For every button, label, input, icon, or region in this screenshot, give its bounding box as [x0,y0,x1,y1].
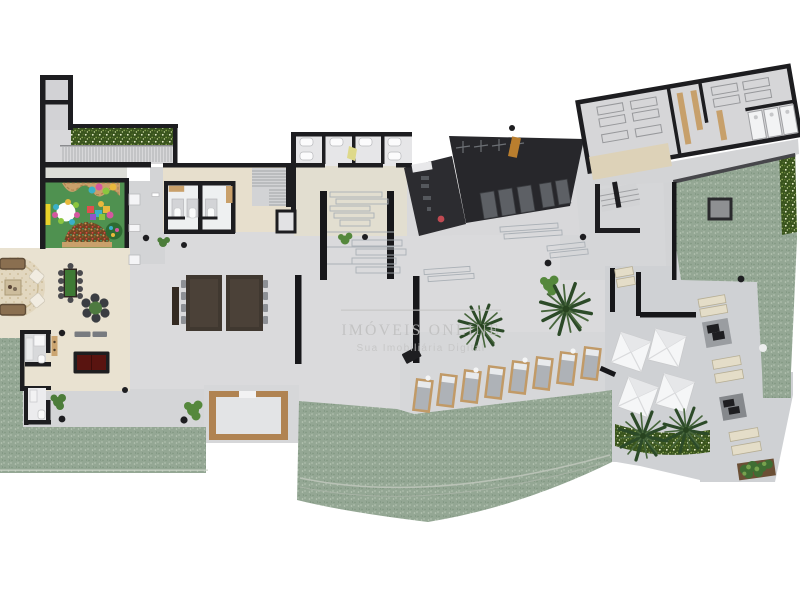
svg-text:IMÓVEIS ONLINE: IMÓVEIS ONLINE [341,320,500,339]
svg-text:Sua Imobiliária Digital: Sua Imobiliária Digital [357,343,486,354]
